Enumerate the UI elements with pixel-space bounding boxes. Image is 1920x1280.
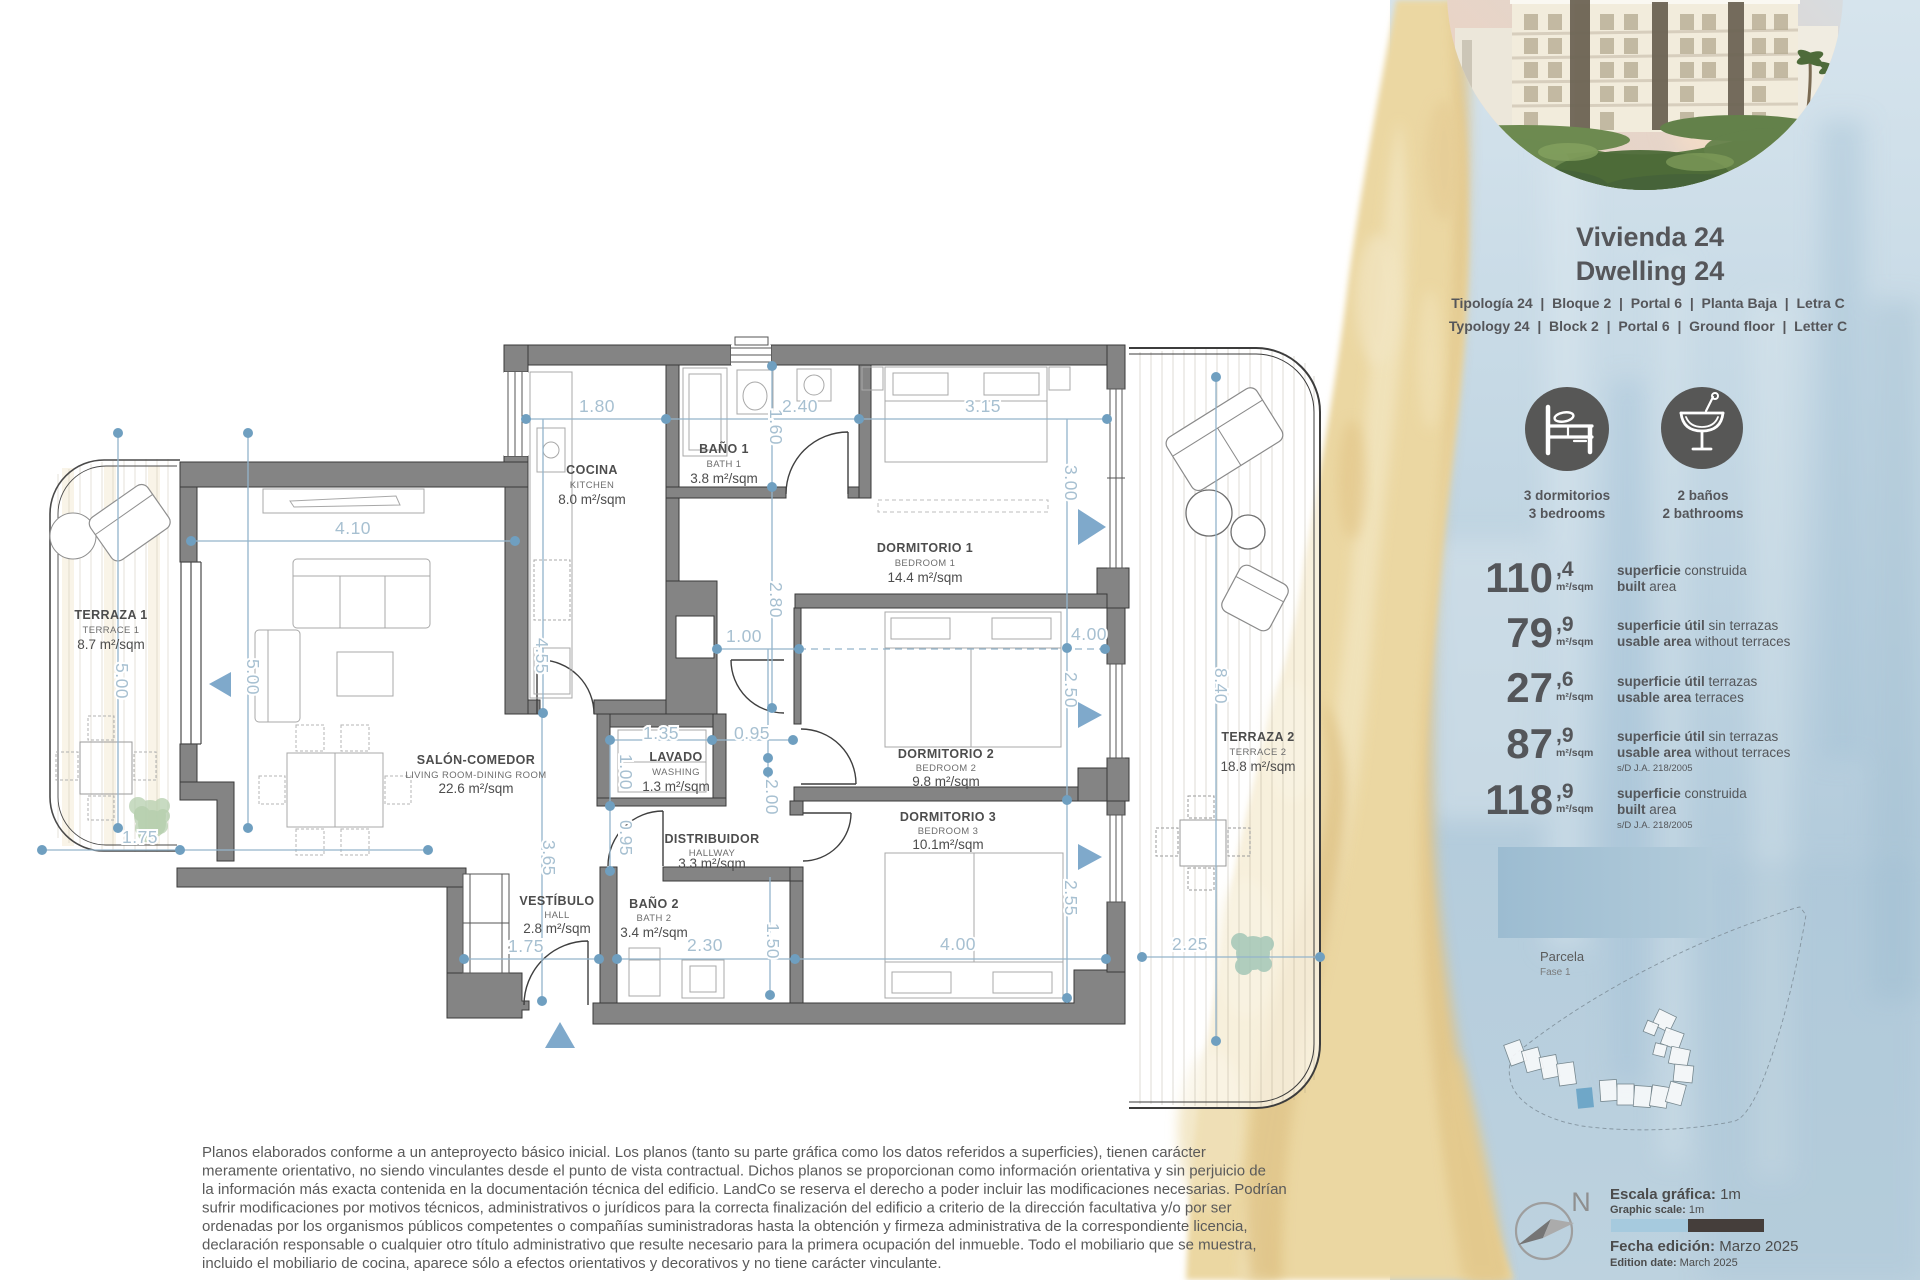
svg-text:DORMITORIO 2: DORMITORIO 2 (898, 747, 994, 761)
svg-text:1.60: 1.60 (766, 409, 786, 445)
svg-text:COCINA: COCINA (566, 463, 618, 477)
svg-text:79: 79 (1506, 609, 1553, 656)
svg-text:4.55: 4.55 (532, 638, 552, 674)
svg-text:TERRAZA 1: TERRAZA 1 (74, 608, 147, 622)
svg-text:Graphic scale: 1m: Graphic scale: 1m (1610, 1204, 1704, 1216)
svg-text:BATH 1: BATH 1 (707, 459, 742, 470)
svg-text:usable area without terraces: usable area without terraces (1617, 634, 1791, 649)
svg-text:1.50: 1.50 (763, 923, 783, 959)
svg-text:1.35: 1.35 (643, 723, 679, 743)
svg-text:1.80: 1.80 (579, 396, 615, 416)
svg-text:m²/sqm: m²/sqm (1556, 747, 1593, 759)
svg-text:8.40: 8.40 (1211, 668, 1231, 704)
svg-text:,9: ,9 (1556, 724, 1574, 747)
svg-text:ordenadas por los organismos p: ordenadas por los organismos públicos co… (202, 1218, 1248, 1235)
svg-text:HALL: HALL (544, 910, 569, 921)
svg-text:0.95: 0.95 (734, 723, 770, 743)
svg-text:DORMITORIO 1: DORMITORIO 1 (877, 541, 973, 555)
svg-text:2.25: 2.25 (1172, 934, 1208, 954)
svg-text:m²/sqm: m²/sqm (1556, 803, 1593, 815)
svg-text:2.40: 2.40 (782, 396, 818, 416)
svg-text:1.00: 1.00 (616, 754, 636, 790)
svg-text:1.3 m²/sqm: 1.3 m²/sqm (642, 779, 710, 794)
svg-text:2 bathrooms: 2 bathrooms (1662, 506, 1743, 521)
svg-text:Planos elaborados conforme a u: Planos elaborados conforme a un anteproy… (202, 1144, 1206, 1161)
svg-text:BEDROOM 2: BEDROOM 2 (916, 763, 977, 774)
svg-text:1.75: 1.75 (122, 827, 158, 847)
svg-text:0.95: 0.95 (616, 820, 636, 856)
svg-text:superficie útil terrazas: superficie útil terrazas (1617, 674, 1758, 689)
svg-text:Typology 24 | Block 2 | Po: Typology 24 | Block 2 | Portal 6 | Groun… (1449, 318, 1847, 334)
svg-text:LAVADO: LAVADO (649, 750, 702, 764)
svg-text:built area: built area (1617, 579, 1677, 594)
svg-text:5.00: 5.00 (112, 663, 132, 699)
svg-text:,9: ,9 (1556, 780, 1574, 803)
svg-text:Edition date: March 2025: Edition date: March 2025 (1610, 1257, 1738, 1269)
svg-text:4.00: 4.00 (940, 934, 976, 954)
svg-text:2.55: 2.55 (1061, 880, 1081, 916)
svg-text:2.30: 2.30 (687, 935, 723, 955)
svg-text:BEDROOM 1: BEDROOM 1 (895, 558, 956, 569)
svg-text:8.7 m²/sqm: 8.7 m²/sqm (77, 637, 145, 652)
svg-text:m²/sqm: m²/sqm (1556, 636, 1593, 648)
svg-text:BEDROOM 3: BEDROOM 3 (918, 826, 979, 837)
svg-text:WASHING: WASHING (652, 767, 700, 778)
svg-text:3 dormitorios: 3 dormitorios (1524, 488, 1610, 503)
svg-text:s/D J.A. 218/2005: s/D J.A. 218/2005 (1617, 820, 1693, 831)
svg-text:Dwelling 24: Dwelling 24 (1576, 256, 1725, 286)
svg-text:m²/sqm: m²/sqm (1556, 581, 1593, 593)
svg-text:2.00: 2.00 (762, 779, 782, 815)
svg-text:14.4 m²/sqm: 14.4 m²/sqm (887, 570, 962, 585)
svg-text:Parcela: Parcela (1540, 949, 1585, 964)
svg-text:3.65: 3.65 (539, 840, 559, 876)
svg-text:N: N (1571, 1187, 1591, 1217)
svg-text:9.8 m²/sqm: 9.8 m²/sqm (912, 774, 980, 789)
svg-text:superficie construida: superficie construida (1617, 563, 1747, 578)
svg-text:,9: ,9 (1556, 613, 1574, 636)
svg-text:1.00: 1.00 (726, 626, 762, 646)
svg-text:87: 87 (1506, 720, 1553, 767)
svg-text:TERRAZA 2: TERRAZA 2 (1221, 730, 1294, 744)
svg-text:m²/sqm: m²/sqm (1556, 691, 1593, 703)
svg-text:3.3 m²/sqm: 3.3 m²/sqm (678, 856, 746, 871)
svg-text:superficie construida: superficie construida (1617, 786, 1747, 801)
svg-text:usable area without terraces: usable area without terraces (1617, 745, 1791, 760)
svg-text:,4: ,4 (1556, 558, 1574, 581)
svg-text:4.00: 4.00 (1071, 624, 1107, 644)
svg-text:8.0 m²/sqm: 8.0 m²/sqm (558, 492, 626, 507)
svg-text:Escala gráfica: 1m: Escala gráfica: 1m (1610, 1186, 1741, 1203)
svg-text:1.75: 1.75 (508, 936, 544, 956)
svg-text:4.10: 4.10 (335, 518, 371, 538)
svg-text:27: 27 (1506, 664, 1553, 711)
svg-text:Vivienda 24: Vivienda 24 (1576, 222, 1724, 252)
svg-text:118: 118 (1485, 776, 1553, 823)
svg-text:10.1m²/sqm: 10.1m²/sqm (912, 837, 983, 852)
svg-text:18.8 m²/sqm: 18.8 m²/sqm (1220, 759, 1295, 774)
svg-text:TERRACE 2: TERRACE 2 (1230, 747, 1287, 758)
svg-text:Fecha edición: Marzo 2025: Fecha edición: Marzo 2025 (1610, 1238, 1798, 1255)
svg-text:declaración responsable o cual: declaración responsable o cualquier otro… (202, 1237, 1256, 1254)
svg-text:2.8 m²/sqm: 2.8 m²/sqm (523, 921, 591, 936)
svg-text:VESTÍBULO: VESTÍBULO (519, 893, 594, 908)
svg-text:meramente orientativo, no sien: meramente orientativo, no siendo vincula… (202, 1163, 1266, 1180)
svg-text:DORMITORIO 3: DORMITORIO 3 (900, 810, 996, 824)
svg-text:incluido el mobiliario de coci: incluido el mobiliario de cocina, aparec… (202, 1255, 942, 1272)
svg-text:22.6 m²/sqm: 22.6 m²/sqm (438, 781, 513, 796)
svg-text:3.00: 3.00 (1061, 465, 1081, 501)
svg-text:superficie útil sin terrazas: superficie útil sin terrazas (1617, 729, 1779, 744)
svg-text:built area: built area (1617, 802, 1677, 817)
svg-text:LIVING ROOM-DINING ROOM: LIVING ROOM-DINING ROOM (405, 770, 546, 781)
svg-text:superficie útil sin terrazas: superficie útil sin terrazas (1617, 618, 1779, 633)
svg-text:Fase 1: Fase 1 (1540, 967, 1571, 978)
svg-text:s/D J.A. 218/2005: s/D J.A. 218/2005 (1617, 763, 1693, 774)
svg-text:BAÑO 1: BAÑO 1 (699, 441, 749, 456)
svg-text:la información más exacta cont: la información más exacta contenida en l… (202, 1181, 1287, 1198)
svg-text:SALÓN-COMEDOR: SALÓN-COMEDOR (417, 752, 535, 767)
svg-text:TERRACE 1: TERRACE 1 (83, 625, 140, 636)
svg-text:,6: ,6 (1556, 668, 1574, 691)
svg-text:DISTRIBUIDOR: DISTRIBUIDOR (664, 832, 759, 846)
svg-text:2 baños: 2 baños (1677, 488, 1728, 503)
svg-text:sufrir modificaciones por moti: sufrir modificaciones por motivos técnic… (202, 1200, 1232, 1217)
svg-text:3 bedrooms: 3 bedrooms (1529, 506, 1606, 521)
svg-text:KITCHEN: KITCHEN (570, 480, 615, 491)
svg-text:5.00: 5.00 (243, 659, 263, 695)
svg-text:3.15: 3.15 (965, 396, 1001, 416)
svg-text:usable area terraces: usable area terraces (1617, 690, 1744, 705)
svg-text:BATH 2: BATH 2 (637, 913, 672, 924)
svg-text:2.80: 2.80 (766, 582, 786, 618)
svg-text:BAÑO 2: BAÑO 2 (629, 896, 679, 911)
svg-text:Tipología 24 | Bloque 2 |: Tipología 24 | Bloque 2 | Portal 6 | Pla… (1451, 295, 1845, 311)
svg-text:3.4 m²/sqm: 3.4 m²/sqm (620, 925, 688, 940)
svg-text:110: 110 (1485, 554, 1553, 601)
svg-text:3.8 m²/sqm: 3.8 m²/sqm (690, 471, 758, 486)
